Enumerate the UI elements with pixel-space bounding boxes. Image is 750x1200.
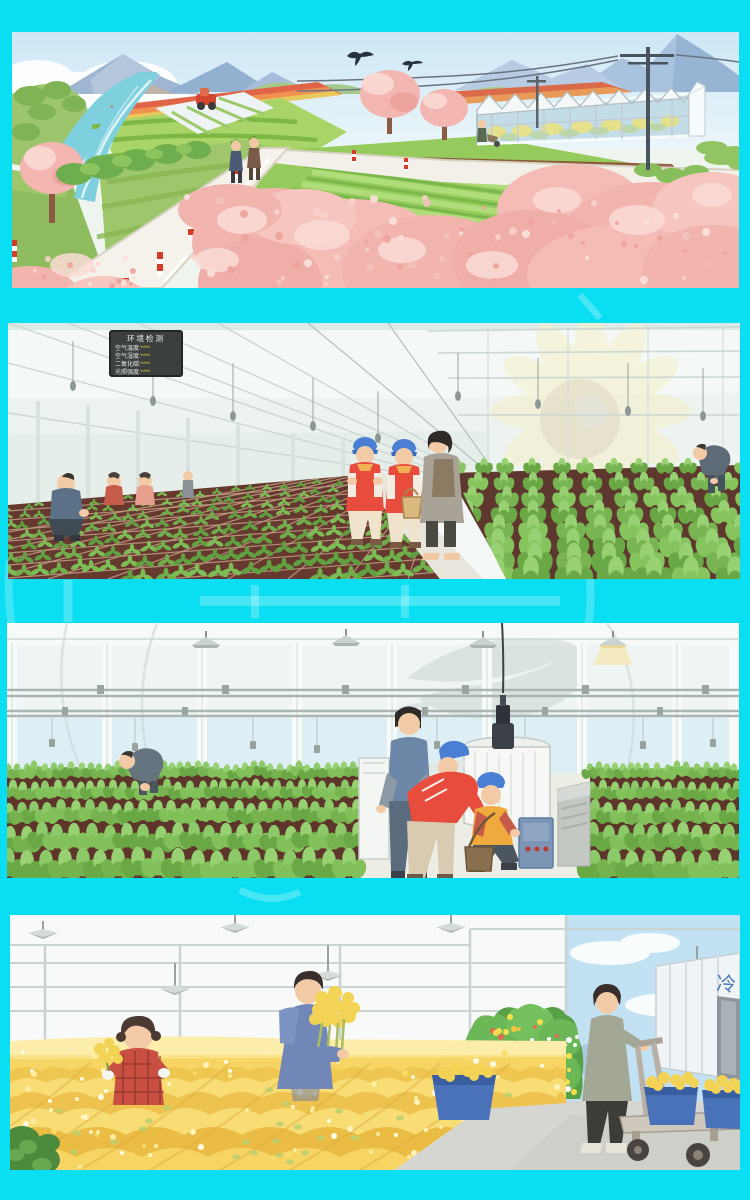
- svg-text:冷: 冷: [716, 972, 737, 996]
- svg-text:空气温度:****: 空气温度:****: [115, 344, 151, 352]
- svg-text:环境检测: 环境检测: [127, 333, 165, 343]
- svg-text:光照强度:****: 光照强度:****: [115, 368, 151, 376]
- svg-text:二氧化碳:****: 二氧化碳:****: [115, 360, 151, 368]
- svg-text:空气湿度:****: 空气湿度:****: [115, 352, 151, 360]
